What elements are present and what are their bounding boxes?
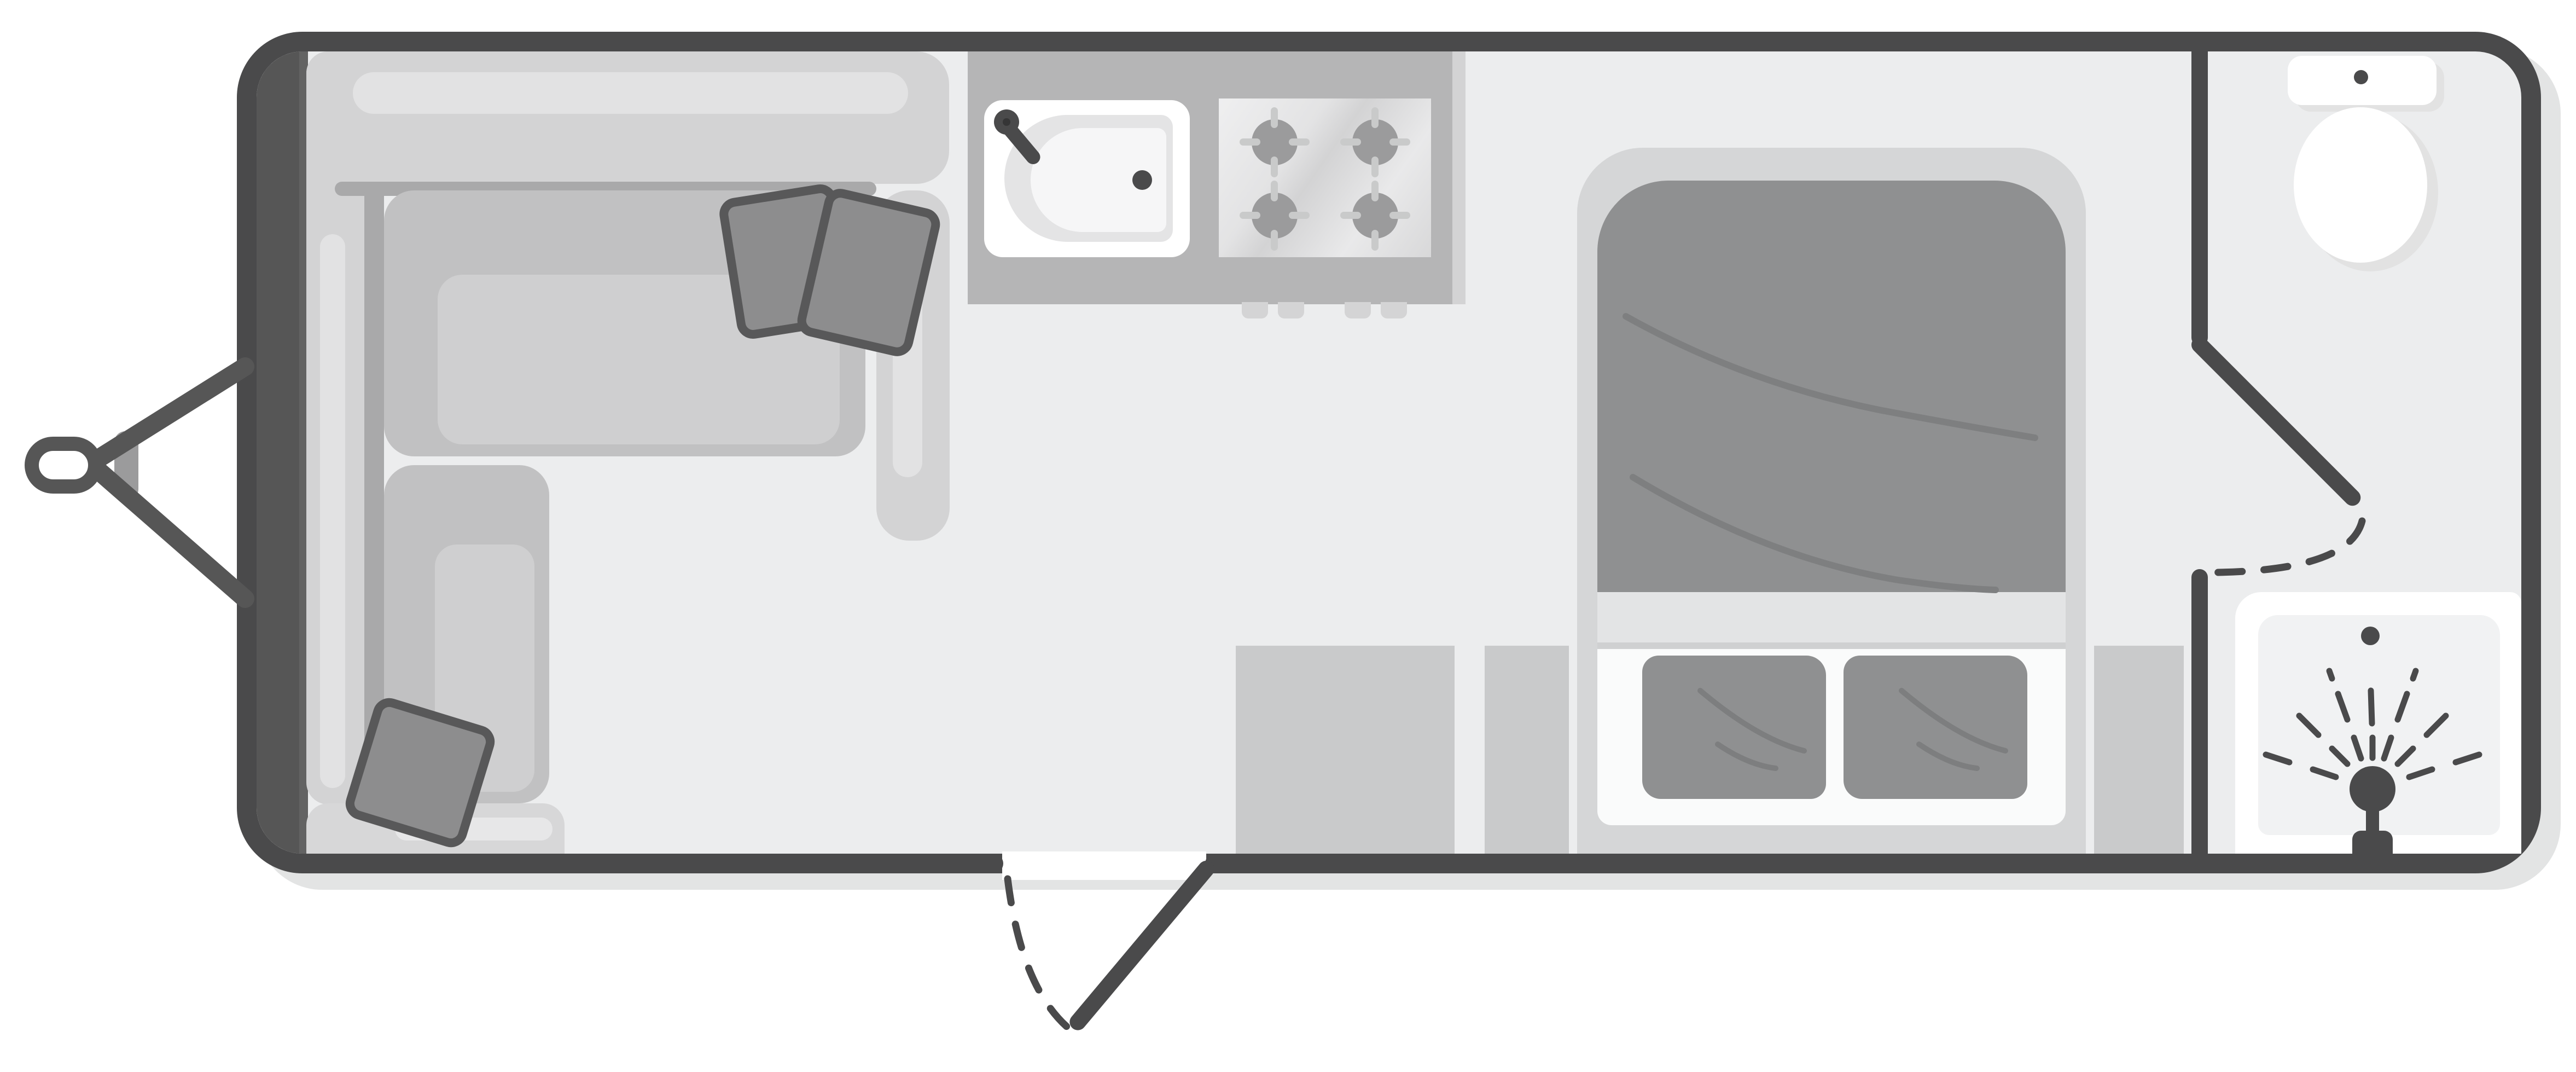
hob-control-knob [1381, 302, 1407, 318]
bed-pillow [1642, 656, 1826, 799]
gas-hob [1219, 98, 1431, 257]
bedside-cabinet-right [2094, 646, 2184, 854]
burner-grate-tick [1340, 138, 1361, 146]
toilet-bowl [2294, 107, 2427, 263]
burner-grate-tick [1289, 138, 1310, 146]
burner-grate-tick [1240, 138, 1260, 146]
sink-drain-icon [1132, 170, 1152, 190]
burner-grate-tick [1289, 212, 1310, 219]
hitch-jockey-strut-icon [114, 431, 138, 500]
burner-grate-tick [1389, 212, 1410, 219]
front-locker-band [257, 51, 308, 854]
bedside-cabinet-left [1485, 646, 1569, 854]
burner-grate-tick [1271, 157, 1278, 177]
hob-control-knob [1242, 302, 1268, 318]
burner-grate-tick [1271, 181, 1278, 201]
sofa-backrest-highlight [353, 72, 908, 114]
toilet-flush-button-icon [2354, 70, 2368, 84]
hitch-coupling-ring-icon [25, 437, 102, 494]
bathroom-partition-wall [2191, 51, 2208, 346]
burner-grate-tick [1240, 212, 1260, 219]
burner-grate-tick [1389, 138, 1410, 146]
entry-door-leaf [1066, 857, 1218, 1034]
burner-grate-tick [1371, 230, 1379, 251]
bathroom-partition-wall [2191, 569, 2208, 854]
kitchen-counter-end-panel [1452, 51, 1466, 304]
shower-drain-icon [2361, 627, 2380, 645]
bed-pillow [1844, 656, 2027, 799]
entry-door-opening [1002, 851, 1206, 880]
burner-grate-tick [1371, 181, 1379, 201]
bed-sheet-fold [1597, 592, 2066, 642]
burner-grate-tick [1371, 157, 1379, 177]
door-jamb-cap [984, 854, 1003, 873]
burner-grate-tick [1371, 107, 1379, 128]
hob-control-knob [1345, 302, 1371, 318]
bed-blanket [1597, 181, 2066, 592]
base-cabinet [1236, 646, 1455, 854]
shower-head-icon [2350, 766, 2395, 812]
sofa-backrest-top [306, 51, 949, 184]
bed-sheet-shadow [1597, 642, 2066, 649]
floorplan-canvas [0, 0, 2576, 1072]
sofa-backrest-highlight [320, 234, 345, 788]
burner-grate-tick [1271, 107, 1278, 128]
burner-grate-tick [1271, 230, 1278, 251]
burner-grate-tick [1340, 212, 1361, 219]
faucet-base-dot [1003, 118, 1010, 126]
shower-head-mount [2352, 831, 2393, 854]
hob-control-knob [1278, 302, 1304, 318]
